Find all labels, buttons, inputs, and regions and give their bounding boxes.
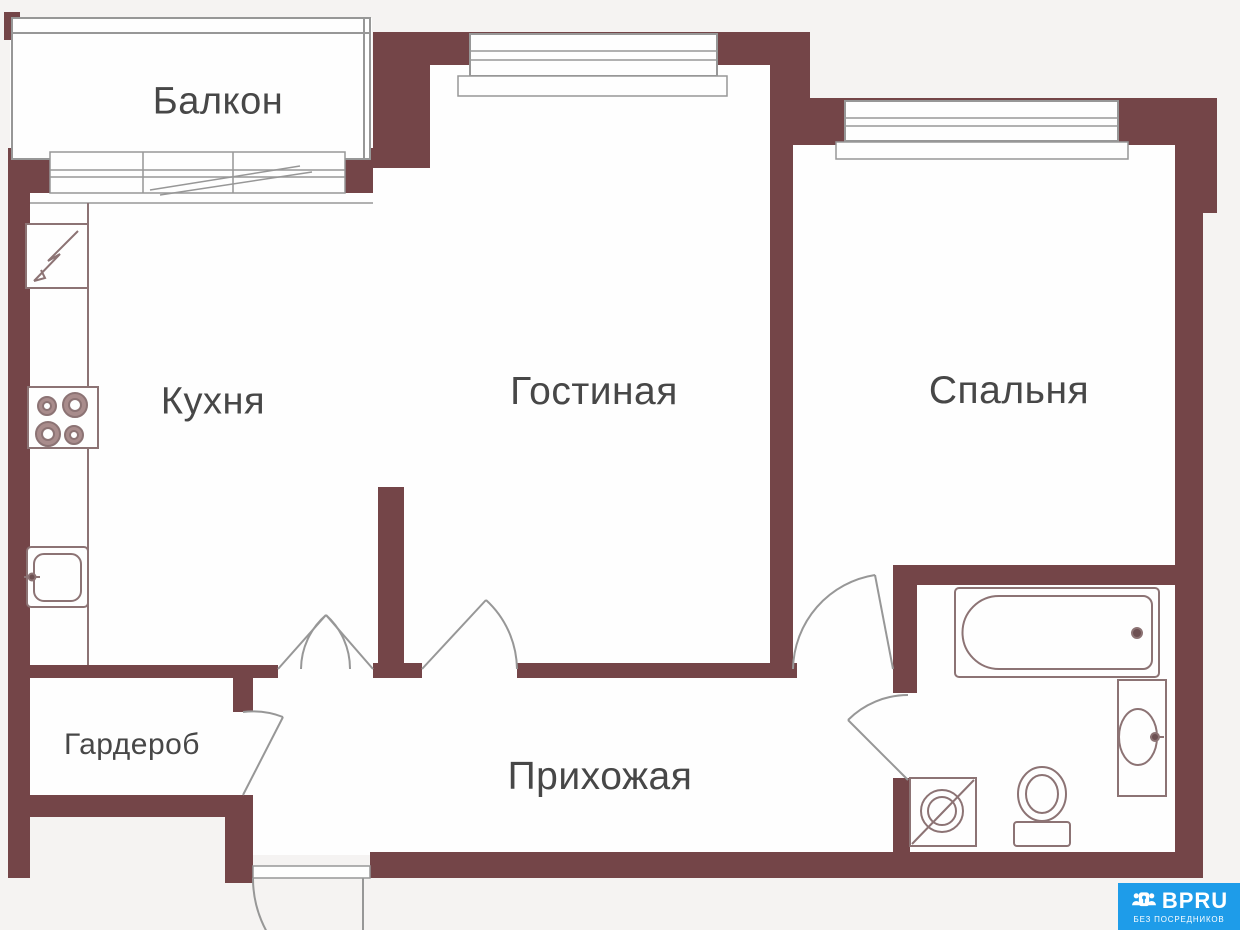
wall-kitchen-stub-base [373, 663, 422, 678]
wall-bathroom-left-lower [893, 778, 910, 856]
living-window-icon [470, 34, 717, 76]
room-label-balcony: Балкон [153, 81, 283, 124]
wall-entrance-corner [225, 817, 253, 883]
wall-living-bedroom-divider [770, 65, 793, 665]
wall-right-exterior [1175, 140, 1203, 878]
outside-patch [8, 817, 253, 930]
wall-hallway-top [517, 663, 797, 678]
logo-text: BPRU [1162, 890, 1228, 912]
washbasin-icon [1118, 680, 1166, 796]
room-label-kitchen: Кухня [161, 381, 265, 424]
kitchen-sink-icon [24, 547, 88, 607]
wall-right-bump [1203, 140, 1217, 213]
balcony-slider-window-icon [50, 152, 345, 193]
bedroom-window-sill [836, 142, 1128, 159]
wall-wardrobe-bottom [8, 795, 253, 817]
room-label-living: Гостиная [510, 370, 678, 414]
room-label-bedroom: Спальня [929, 369, 1089, 413]
wall-bathroom-left [893, 565, 917, 693]
wall-bathroom-top [893, 565, 1203, 585]
logo-tagline: БЕЗ ПОСРЕДНИКОВ [1134, 915, 1225, 924]
wall-bottom-exterior [370, 852, 1203, 878]
stove-icon [28, 387, 98, 448]
fridge-icon [26, 224, 88, 288]
people-lock-icon [1130, 889, 1158, 913]
bathtub-icon [955, 588, 1159, 677]
floor-plan: Балкон Кухня Гостиная Спальня Гардероб П… [0, 0, 1240, 930]
living-window-sill [458, 76, 727, 96]
bedroom-window-icon [845, 101, 1118, 141]
bpru-logo: BPRU БЕЗ ПОСРЕДНИКОВ [1118, 883, 1240, 930]
room-label-hallway: Прихожая [508, 755, 693, 799]
wall-wardrobe-right-upper [233, 665, 253, 712]
toilet-icon [1014, 767, 1070, 846]
washing-machine-icon [910, 778, 976, 846]
room-label-wardrobe: Гардероб [64, 728, 200, 762]
wall-kitchen-stub [378, 487, 404, 663]
